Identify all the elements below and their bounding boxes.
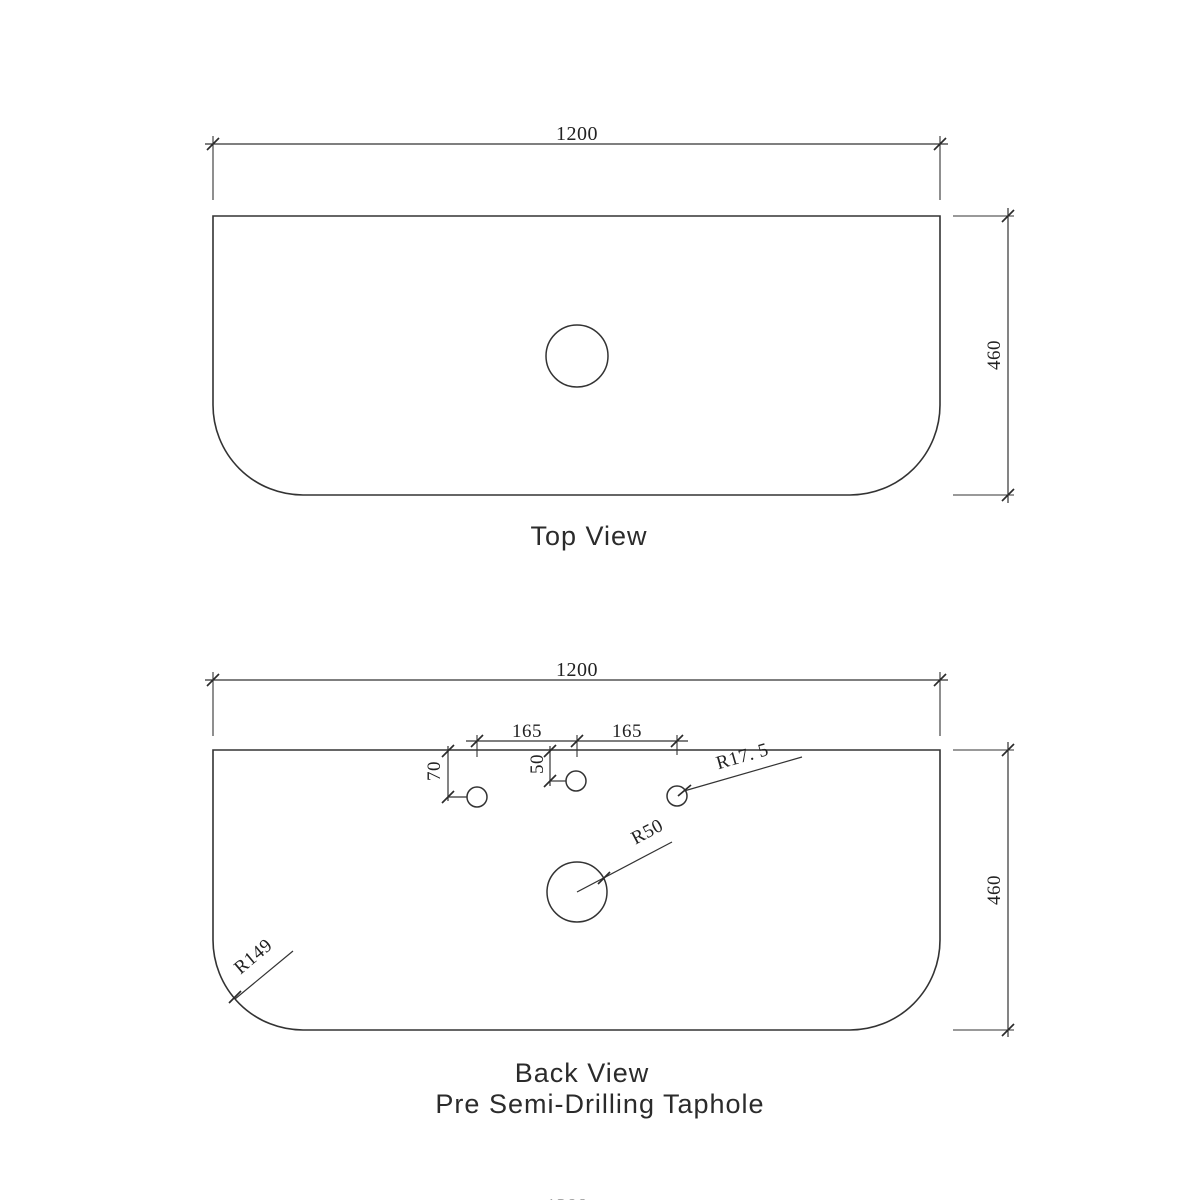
back-view-width-dim-text: 1200 <box>556 659 598 681</box>
left-taphole-offset-text: 70 <box>424 761 445 781</box>
top-view-height-dimension: 460 <box>953 208 1014 503</box>
back-view-outline <box>213 750 940 1030</box>
top-view: 1200 460 Top View <box>205 123 1014 551</box>
back-view-sublabel: Pre Semi-Drilling Taphole <box>435 1089 764 1119</box>
top-view-outline <box>213 216 940 495</box>
technical-drawing-canvas: 1200 460 Top View 1200 <box>0 0 1200 1200</box>
center-taphole-offset-dimension: 50 <box>527 745 566 787</box>
top-view-width-dim-text: 1200 <box>556 123 598 145</box>
small-taphole-radius-leader: R17. 5 <box>678 739 802 796</box>
corner-radius-text: R149 <box>230 935 277 979</box>
back-view-height-dim-text: 460 <box>984 875 1005 905</box>
back-view-height-dimension: 460 <box>953 742 1014 1037</box>
top-view-width-dimension: 1200 <box>205 123 948 200</box>
center-taphole-offset-text: 50 <box>527 754 548 774</box>
top-view-waste-hole <box>546 325 608 387</box>
waste-hole-radius-leader: R50 <box>577 815 672 892</box>
back-view-width-dimension: 1200 <box>205 659 948 736</box>
top-view-height-dim-text: 460 <box>984 340 1005 370</box>
cropped-bottom-dim-text: 1200 <box>546 1195 588 1200</box>
drawing-page: 1200 460 Top View 1200 <box>0 0 1200 1200</box>
back-view-right-taphole <box>667 786 687 806</box>
back-view-label: Back View <box>515 1058 650 1088</box>
taphole-spacing-left-text: 165 <box>512 721 542 742</box>
taphole-spacing-right-text: 165 <box>612 721 642 742</box>
back-view: 1200 460 165 165 <box>205 659 1014 1119</box>
waste-hole-radius-text: R50 <box>628 815 667 849</box>
back-view-center-taphole <box>566 771 586 791</box>
top-view-label: Top View <box>530 521 647 551</box>
left-taphole-offset-dimension: 70 <box>424 745 467 803</box>
taphole-spacing-dimension: 165 165 <box>466 721 688 757</box>
corner-radius-leader: R149 <box>229 935 293 1003</box>
back-view-left-taphole <box>467 787 487 807</box>
